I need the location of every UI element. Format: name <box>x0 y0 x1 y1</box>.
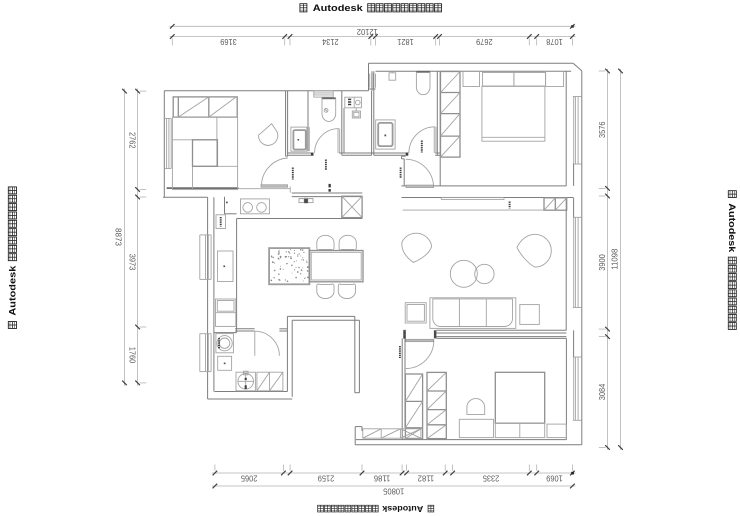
svg-text:Autodesk: Autodesk <box>8 265 19 316</box>
svg-text:3084: 3084 <box>598 383 607 400</box>
svg-text:3973: 3973 <box>128 254 137 271</box>
svg-text:1182: 1182 <box>417 474 434 483</box>
svg-text:2335: 2335 <box>482 474 499 483</box>
svg-text:11098: 11098 <box>611 248 620 270</box>
svg-text:2762: 2762 <box>128 132 137 149</box>
svg-text:10805: 10805 <box>383 487 405 496</box>
svg-text:1760: 1760 <box>128 347 137 364</box>
svg-text:3169: 3169 <box>220 37 237 46</box>
svg-text:1069: 1069 <box>546 474 563 483</box>
svg-text:2159: 2159 <box>317 474 334 483</box>
svg-text:3900: 3900 <box>598 254 607 271</box>
svg-text:2679: 2679 <box>476 37 493 46</box>
svg-text:1821: 1821 <box>397 37 414 46</box>
svg-text:Autodesk: Autodesk <box>382 504 424 513</box>
svg-text:2134: 2134 <box>322 37 339 46</box>
svg-text:8873: 8873 <box>114 228 123 247</box>
svg-text:Autodesk: Autodesk <box>727 203 737 253</box>
svg-text:1078: 1078 <box>546 37 563 46</box>
svg-text:Autodesk: Autodesk <box>313 3 364 14</box>
svg-text:1186: 1186 <box>373 474 390 483</box>
svg-text:3576: 3576 <box>598 121 607 138</box>
svg-text:12102: 12102 <box>356 27 378 36</box>
svg-text:2065: 2065 <box>240 474 257 483</box>
